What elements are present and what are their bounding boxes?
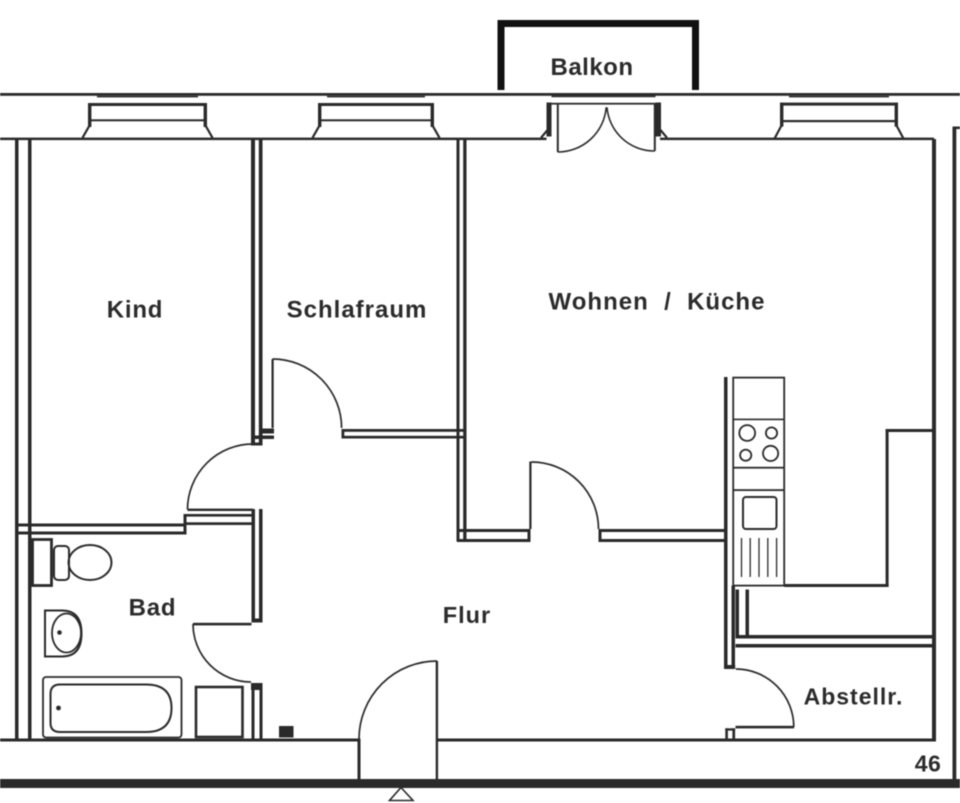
svg-text:Flur: Flur (443, 602, 491, 628)
svg-text:Wohnen / Küche: Wohnen / Küche (549, 289, 766, 316)
svg-text:Balkon: Balkon (550, 54, 633, 81)
svg-text:Kind: Kind (107, 297, 164, 324)
svg-text:46: 46 (915, 751, 942, 777)
svg-text:Schlafraum: Schlafraum (287, 297, 428, 324)
svg-text:Abstellr.: Abstellr. (804, 684, 904, 710)
svg-text:Bad: Bad (129, 595, 177, 622)
